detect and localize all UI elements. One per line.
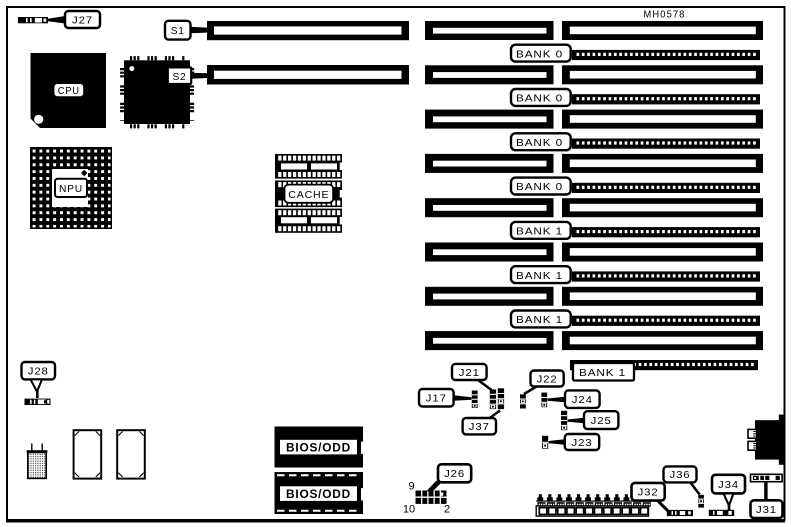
svg-text:BIOS/ODD: BIOS/ODD [286,441,351,455]
svg-text:J24: J24 [572,394,593,406]
svg-text:J22: J22 [537,373,558,385]
svg-text:BIOS/ODD: BIOS/ODD [286,487,351,501]
svg-text:S1: S1 [171,25,185,37]
svg-text:10: 10 [403,504,415,516]
svg-text:J34: J34 [718,479,739,491]
svg-text:2: 2 [444,504,450,516]
svg-text:9: 9 [408,481,414,493]
svg-text:J23: J23 [572,437,593,449]
svg-text:BANK 1: BANK 1 [516,314,563,326]
svg-text:CACHE: CACHE [288,189,329,201]
svg-text:NPU: NPU [59,183,83,195]
svg-text:BANK 0: BANK 0 [516,137,563,149]
svg-text:J31: J31 [756,504,777,516]
svg-text:J25: J25 [591,415,612,427]
svg-text:J21: J21 [459,367,480,379]
svg-text:J36: J36 [670,469,691,481]
svg-text:BANK 1: BANK 1 [516,226,563,238]
svg-text:J37: J37 [469,421,490,433]
svg-text:BANK 1: BANK 1 [516,270,563,282]
svg-text:CPU: CPU [58,85,80,97]
svg-text:BANK 1: BANK 1 [579,367,626,379]
svg-text:J27: J27 [72,14,93,26]
svg-text:J17: J17 [426,393,447,405]
svg-text:MH0578: MH0578 [644,10,686,21]
svg-text:BANK 0: BANK 0 [516,48,563,60]
svg-text:J26: J26 [444,468,465,480]
svg-text:BANK 0: BANK 0 [516,93,563,105]
svg-text:J28: J28 [28,366,49,378]
svg-text:S2: S2 [173,71,187,83]
svg-text:BANK 0: BANK 0 [516,181,563,193]
svg-text:J32: J32 [638,487,659,499]
